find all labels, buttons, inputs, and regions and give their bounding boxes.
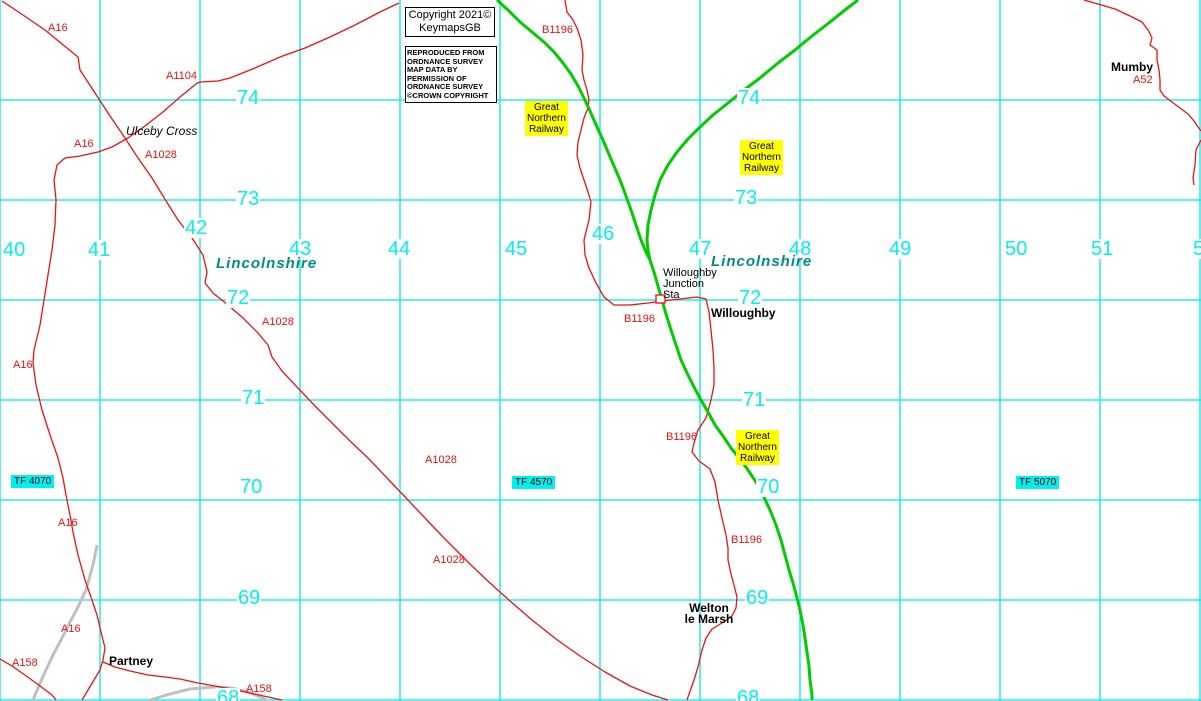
road-label-a16: A16 [61,624,81,635]
grid-label-44: 44 [387,239,411,259]
grid-label-69: 69 [237,588,261,608]
grid-label-73: 73 [734,188,758,208]
copyright-box: Copyright 2021© KeymapsGB [405,7,495,37]
road-label-b1196: B1196 [542,25,573,36]
road-label-a1028: A1028 [145,150,177,161]
grid-label-46: 46 [591,224,615,244]
road-label-b1196: B1196 [666,432,697,443]
grid-label-68: 68 [736,688,760,701]
railway-company-label-2: GreatNorthernRailway [740,140,783,175]
road-label-a1104: A1104 [166,71,197,82]
grid-label-72: 72 [738,288,762,308]
grid-label-49: 49 [888,239,912,259]
grid-label-50: 50 [1004,239,1028,259]
road-label-a16: A16 [74,139,94,150]
place-label-welton: Weltonle Marsh [683,603,735,625]
road-a16-a1028-path [2,1,668,700]
road-label-a16: A16 [58,518,78,529]
road-label-b1196: B1196 [624,314,655,325]
road-label-a1028: A1028 [425,455,457,466]
map-canvas: 4041424344454647484950515274747373727271… [0,0,1201,701]
place-label-ulceby-cross: Ulceby Cross [126,125,197,137]
grid-label-74: 74 [236,88,260,108]
road-b1196-path [565,0,737,700]
grid-label-41: 41 [87,240,111,260]
grid-label-71: 71 [241,388,265,408]
grid-label-73: 73 [236,189,260,209]
county-label: Lincolnshire [216,256,317,271]
place-label-partney: Partney [109,655,153,667]
grid-square-label-TF4070: TF 4070 [11,475,54,488]
grid-label-74: 74 [737,88,761,108]
grid-label-42: 42 [184,218,208,238]
road-label-a16: A16 [48,23,68,34]
road-label-a52: A52 [1133,75,1153,86]
grid-label-71: 71 [742,390,766,410]
railway-gnr-main-south-path [650,260,812,700]
grid-label-52: 52 [1192,239,1201,259]
copyright-line1: Copyright 2021© [406,9,494,22]
road-label-a16: A16 [13,360,33,371]
os-copyright-notice: REPRODUCED FROMORDNANCE SURVEYMAP DATA B… [405,46,497,103]
grid-label-45: 45 [504,239,528,259]
road-label-a158: A158 [12,658,38,669]
grid-label-47: 47 [688,239,712,259]
railway-gnr-northeast-branch-path [647,0,858,260]
road-label-a158: A158 [246,684,272,695]
grid-label-70: 70 [239,477,263,497]
grid-label-70: 70 [756,477,780,497]
grid-label-72: 72 [226,288,250,308]
grid-label-68: 68 [216,688,240,701]
railway-gnr-northwest-branch-path [497,0,650,260]
county-label: Lincolnshire [711,254,812,269]
road-label-a1028: A1028 [262,317,294,328]
road-label-a1028: A1028 [433,555,465,566]
railway-company-label-3: GreatNorthernRailway [736,430,779,465]
grid-label-40: 40 [2,240,26,260]
grid-square-label-TF5070: TF 5070 [1016,476,1059,489]
road-label-b1196: B1196 [731,535,762,546]
map-network-layer [0,0,1201,701]
grid-square-label-TF4570: TF 4570 [512,476,555,489]
place-label-willoughby: Willoughby [711,307,776,319]
copyright-line2: KeymapsGB [406,22,494,35]
place-label-mumby: Mumby [1111,61,1153,73]
grid-label-51: 51 [1090,239,1114,259]
place-label-willoughby: WilloughbyJunctionSta [663,268,717,301]
road-a1104-a16-path [33,3,399,700]
grid-label-69: 69 [745,588,769,608]
os-notice-line: ©CROWN COPYRIGHT [407,92,495,101]
railway-company-label-1: GreatNorthernRailway [525,101,568,136]
